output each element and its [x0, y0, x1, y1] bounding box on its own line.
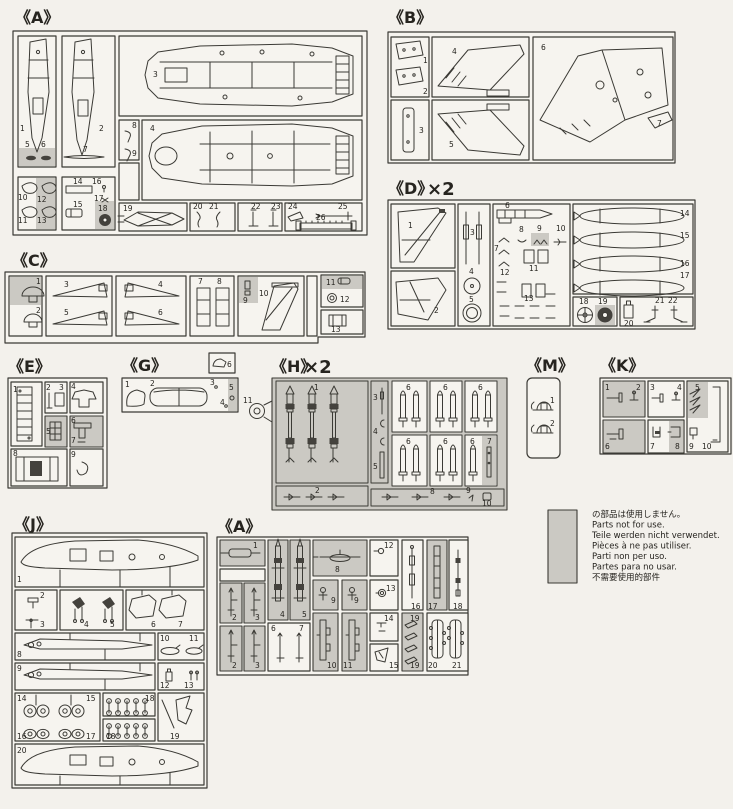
wheel-part	[598, 308, 613, 323]
part-number: 13	[331, 325, 341, 334]
instruction-sheet: 《A》	[0, 0, 733, 809]
part-number: 17	[680, 271, 690, 280]
part-number: 19	[170, 732, 180, 741]
panel-D: 《D》 ×2	[388, 179, 695, 329]
part-number: 19	[123, 204, 133, 213]
part-number: 6	[406, 437, 411, 446]
part-number: 2	[99, 124, 104, 133]
part-number: 5	[302, 610, 307, 619]
part-number: 9	[537, 224, 542, 233]
part-number: 3	[255, 613, 260, 622]
part-number: 14	[680, 209, 690, 218]
part-number: 8	[430, 487, 435, 496]
part-number: 13	[37, 216, 47, 225]
panel-label: 《K》	[600, 356, 644, 375]
part-number: 4	[71, 382, 76, 391]
part-number: 18	[453, 602, 463, 611]
part-number: 6	[227, 360, 232, 369]
part-number: 1	[17, 575, 22, 584]
part-number: 10	[482, 499, 492, 508]
part-number: 18	[106, 732, 116, 741]
part-number: 3	[40, 620, 45, 629]
legend: の部品は使用しません。 Parts not for use. Teile wer…	[548, 509, 720, 583]
part-number: 2	[423, 87, 428, 96]
part-number: 6	[478, 383, 483, 392]
part-number: 8	[217, 277, 222, 286]
part-number: 4	[469, 267, 474, 276]
part-number: 8	[519, 225, 524, 234]
panel-E: 《E》	[8, 357, 107, 488]
panel-A2: 《A》	[217, 517, 468, 675]
part-number: 9	[354, 596, 359, 605]
part-number: 12	[160, 681, 170, 690]
part-number: 2	[232, 613, 237, 622]
part-number: 21	[655, 296, 665, 305]
part-number: 6	[541, 43, 546, 52]
part-number: 14	[384, 614, 394, 623]
part-number: 24	[288, 202, 298, 211]
part-number: 9	[466, 486, 471, 495]
part-number: 8	[675, 442, 680, 451]
legend-line: Parti non per uso.	[592, 552, 667, 562]
part-number: 16	[411, 602, 421, 611]
part-number: 3	[255, 661, 260, 670]
part-number: 14	[17, 694, 27, 703]
part-number: 22	[251, 202, 261, 211]
part-number: 3	[419, 126, 424, 135]
part-number: 8	[132, 121, 137, 130]
part-number: 2	[232, 661, 237, 670]
part-number: 11	[326, 278, 336, 287]
part-number: 8	[335, 565, 340, 574]
part-number: 18	[145, 694, 155, 703]
part-number: 2	[150, 379, 155, 388]
part-number: 16	[680, 259, 690, 268]
part-number: 7	[487, 437, 492, 446]
panel-multiplier: ×2	[304, 357, 332, 378]
part-number: 17	[86, 732, 96, 741]
part-number: 8	[13, 449, 18, 458]
part-number: 14	[73, 177, 83, 186]
part-number: 3	[373, 393, 378, 402]
part-number: 7	[494, 244, 499, 253]
part-number: 13	[524, 294, 534, 303]
legend-line: Pièces à ne pas utiliser.	[592, 541, 691, 552]
part-number: 6	[151, 620, 156, 629]
part-number: 20	[17, 746, 27, 755]
part-number: 20	[624, 319, 634, 328]
part-number: 22	[668, 296, 678, 305]
part-number: 7	[83, 145, 88, 154]
part-number: 1	[20, 124, 25, 133]
legend-line: Parts not for use.	[592, 521, 665, 531]
part-number: 10	[259, 289, 269, 298]
part-number: 11	[18, 216, 28, 225]
part-number: 7	[650, 442, 655, 451]
part-number: 6	[443, 383, 448, 392]
part-number: 7	[299, 624, 304, 633]
part-number: 6	[406, 383, 411, 392]
part-number: 12	[37, 195, 47, 204]
part-number: 4	[280, 610, 285, 619]
part-number: 3	[64, 280, 69, 289]
part-number: 4	[677, 383, 682, 392]
part-number: 12	[500, 268, 510, 277]
part-number: 1	[408, 221, 413, 230]
part-number: 18	[579, 297, 589, 306]
part-number: 19	[410, 614, 420, 623]
part-number: 20	[428, 661, 438, 670]
part-number: 10	[160, 634, 170, 643]
panel-G: 《G》 1 2 3 4 5 6	[122, 353, 238, 412]
part-number: 15	[680, 231, 690, 240]
part-number: 2	[36, 306, 41, 315]
part-number: 10	[327, 661, 337, 670]
part-number: 7	[657, 119, 662, 128]
panel-boxes	[388, 32, 675, 163]
part-number: 5	[373, 462, 378, 471]
part-number: 5	[695, 383, 700, 392]
part-number: 20	[193, 202, 203, 211]
part-number: 16	[17, 732, 27, 741]
part-number: 21	[209, 202, 219, 211]
part-number: 15	[389, 661, 399, 670]
legend-shade-swatch	[548, 510, 577, 583]
part-number: 13	[386, 584, 396, 593]
wheel-part	[578, 308, 593, 323]
panel-box	[527, 378, 560, 458]
part-number: 6	[271, 624, 276, 633]
part-number: 9	[17, 664, 22, 673]
ribbed-can	[448, 620, 464, 658]
part-number: 12	[340, 295, 350, 304]
panel-label: 《A》	[15, 8, 59, 27]
part-number: 2	[434, 306, 439, 315]
part-number: 25	[338, 202, 348, 211]
part-number: 9	[331, 596, 336, 605]
part-number: 9	[243, 296, 248, 305]
panel-label: 《J》	[14, 515, 52, 534]
part-number: 23	[271, 202, 281, 211]
panel-label: 《B》	[388, 8, 432, 27]
part-number: 10	[18, 193, 28, 202]
panel-label: 《M》	[526, 356, 574, 375]
legend-line: 不需要使用的部件	[592, 572, 661, 583]
part-number: 21	[452, 661, 462, 670]
panel-label: 《A》	[217, 517, 261, 536]
part-number: 2	[40, 591, 45, 600]
part-number: 6	[158, 308, 163, 317]
part-number: 3	[59, 383, 64, 392]
part-number: 11	[343, 661, 353, 670]
part-number: 9	[71, 450, 76, 459]
panel-label: 《E》	[8, 357, 51, 376]
part-number: 10	[702, 442, 712, 451]
part-number: 3	[153, 70, 158, 79]
part-number: 1	[605, 383, 610, 392]
part-number: 6	[41, 140, 46, 149]
part-number: 7	[71, 436, 76, 445]
part-number: 9	[689, 442, 694, 451]
part-number: 1	[13, 385, 18, 394]
panel-H: 《H》 ×2	[243, 357, 507, 510]
panel-J: 《J》	[12, 515, 207, 788]
panel-multiplier: ×2	[427, 179, 455, 200]
part-number: 15	[73, 200, 83, 209]
part-number: 16	[92, 177, 102, 186]
part-number: 26	[316, 213, 326, 222]
part-number: 6	[605, 442, 610, 451]
part-number: 6	[71, 416, 76, 425]
legend-line: Partes para no usar.	[592, 563, 677, 573]
part-number: 2	[46, 383, 51, 392]
part-number: 5	[469, 295, 474, 304]
part-number: 4	[150, 124, 155, 133]
part-number: 12	[384, 541, 394, 550]
part-number: 13	[184, 681, 194, 690]
part-number: 5	[46, 427, 51, 436]
part-number: 6	[470, 437, 475, 446]
part-number: 1	[550, 396, 555, 405]
part-number: 5	[110, 620, 115, 629]
part-number: 3	[650, 383, 655, 392]
legend-line: の部品は使用しません。	[592, 509, 685, 520]
part-number: 1	[36, 277, 41, 286]
part-number: 4	[452, 47, 457, 56]
part-number: 5	[64, 308, 69, 317]
part-number: 10	[556, 224, 566, 233]
panel-K: 《K》 1 2 3 4 5	[600, 356, 731, 454]
legend-line: Teile werden nicht verwendet.	[591, 531, 720, 541]
part-number: 9	[132, 149, 137, 158]
part-number: 19	[410, 661, 420, 670]
part-number: 11	[529, 264, 539, 273]
part-number: 11	[189, 634, 199, 643]
panel-C: 《C》	[5, 251, 365, 343]
part-number: 4	[373, 427, 378, 436]
part-number: 4	[84, 620, 89, 629]
part-number: 1	[253, 541, 258, 550]
part-number: 2	[636, 383, 641, 392]
part-number: 3	[470, 228, 475, 237]
ring-part	[250, 401, 273, 422]
part-number: 1	[125, 380, 130, 389]
ribbed-can	[430, 620, 446, 658]
part-number: 7	[198, 277, 203, 286]
part-number: 19	[598, 297, 608, 306]
panel-B: 《B》	[388, 8, 675, 163]
panel-M: 《M》 1 2	[526, 356, 574, 458]
panel-boxes	[5, 272, 365, 343]
part-number: 2	[315, 486, 320, 495]
part-number: 18	[98, 204, 108, 213]
part-number: 17	[428, 602, 438, 611]
panel-label: 《C》	[12, 251, 56, 270]
part-number: 3	[210, 378, 215, 387]
part-number: 1	[314, 383, 319, 392]
part-number: 17	[94, 194, 104, 203]
panel-boxes	[12, 533, 207, 788]
part-number: 6	[443, 437, 448, 446]
part-number: 8	[17, 650, 22, 659]
part-number: 4	[220, 398, 225, 407]
part-number: 15	[86, 694, 96, 703]
part-number: 4	[158, 280, 163, 289]
part-number: 11	[243, 396, 253, 405]
panel-label: 《G》	[122, 356, 167, 375]
parts-map-svg: 《A》	[0, 0, 733, 809]
part-number: 5	[449, 140, 454, 149]
part-number: 7	[178, 620, 183, 629]
part-number: 1	[423, 56, 428, 65]
panel-A1: 《A》	[13, 8, 367, 235]
part-number: 6	[505, 201, 510, 210]
part-number: 2	[550, 419, 555, 428]
part-number: 5	[229, 383, 234, 392]
part-number: 5	[25, 140, 30, 149]
